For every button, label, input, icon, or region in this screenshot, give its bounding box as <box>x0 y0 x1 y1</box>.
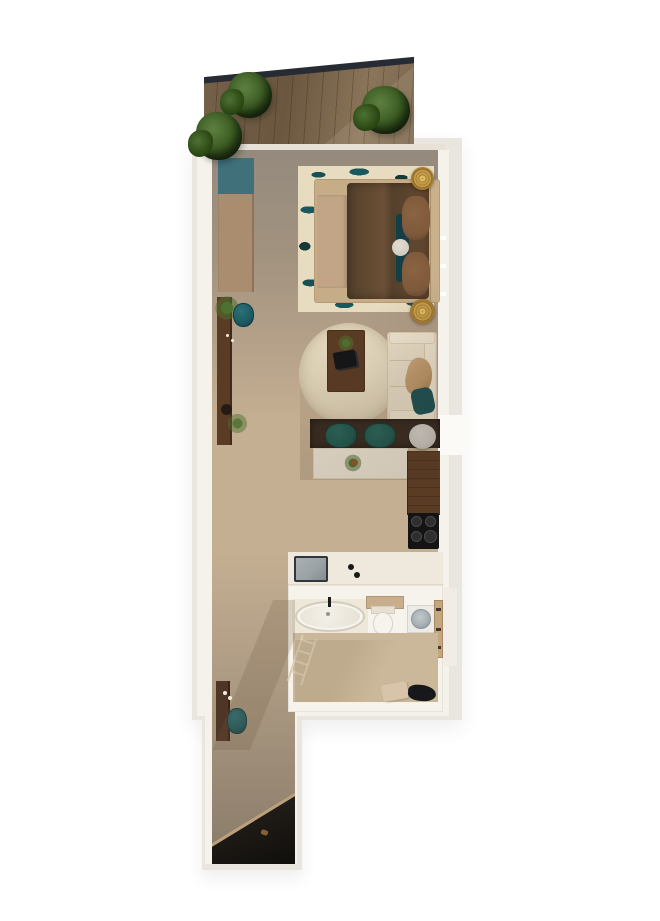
balcony-plant <box>228 72 272 118</box>
balcony-plant <box>196 112 242 160</box>
bathtub-drain <box>326 612 330 616</box>
hall-flowers <box>223 691 227 695</box>
bed-runner <box>317 195 347 288</box>
cooktop-burner <box>424 530 437 543</box>
console-plant-small <box>226 412 249 435</box>
sink-accessory <box>354 572 360 578</box>
dining-chair <box>364 423 396 448</box>
kitchen-tall-cabinet <box>407 451 440 515</box>
nightstand <box>411 167 434 190</box>
sink-faucet <box>348 564 354 570</box>
floor-plan <box>0 0 660 921</box>
kitchen-sink <box>294 556 328 582</box>
washer-drum <box>411 609 431 629</box>
wall-niche-right-lower <box>443 588 457 666</box>
island-bowl <box>351 459 358 466</box>
hall-flowers <box>228 696 232 700</box>
round-side-table <box>409 424 436 449</box>
hall-wall-shelf <box>216 681 230 741</box>
door-hinge <box>436 628 441 631</box>
toilet <box>373 612 393 635</box>
door-hinge <box>436 608 441 611</box>
console-candle <box>226 334 229 337</box>
bathtub-faucet <box>328 597 331 607</box>
console-stool <box>233 303 254 327</box>
hall-stool <box>227 708 247 734</box>
cooktop-burner <box>411 516 422 527</box>
wall-niche-right <box>437 415 467 455</box>
dining-chair <box>325 423 357 448</box>
round-cushion <box>392 239 409 256</box>
sofa-armrest <box>389 332 435 344</box>
wardrobe-top-shelf <box>218 158 254 194</box>
bed-pillow <box>402 252 430 296</box>
cooktop-burner <box>425 516 436 527</box>
wardrobe <box>218 194 254 292</box>
bed-pillow <box>402 196 430 240</box>
cooktop-burner <box>411 531 422 542</box>
bathtub-basin <box>300 605 360 628</box>
balcony-plant <box>362 86 410 134</box>
bed-headboard <box>430 181 439 301</box>
nightstand <box>410 299 435 324</box>
console-candle <box>231 339 234 342</box>
